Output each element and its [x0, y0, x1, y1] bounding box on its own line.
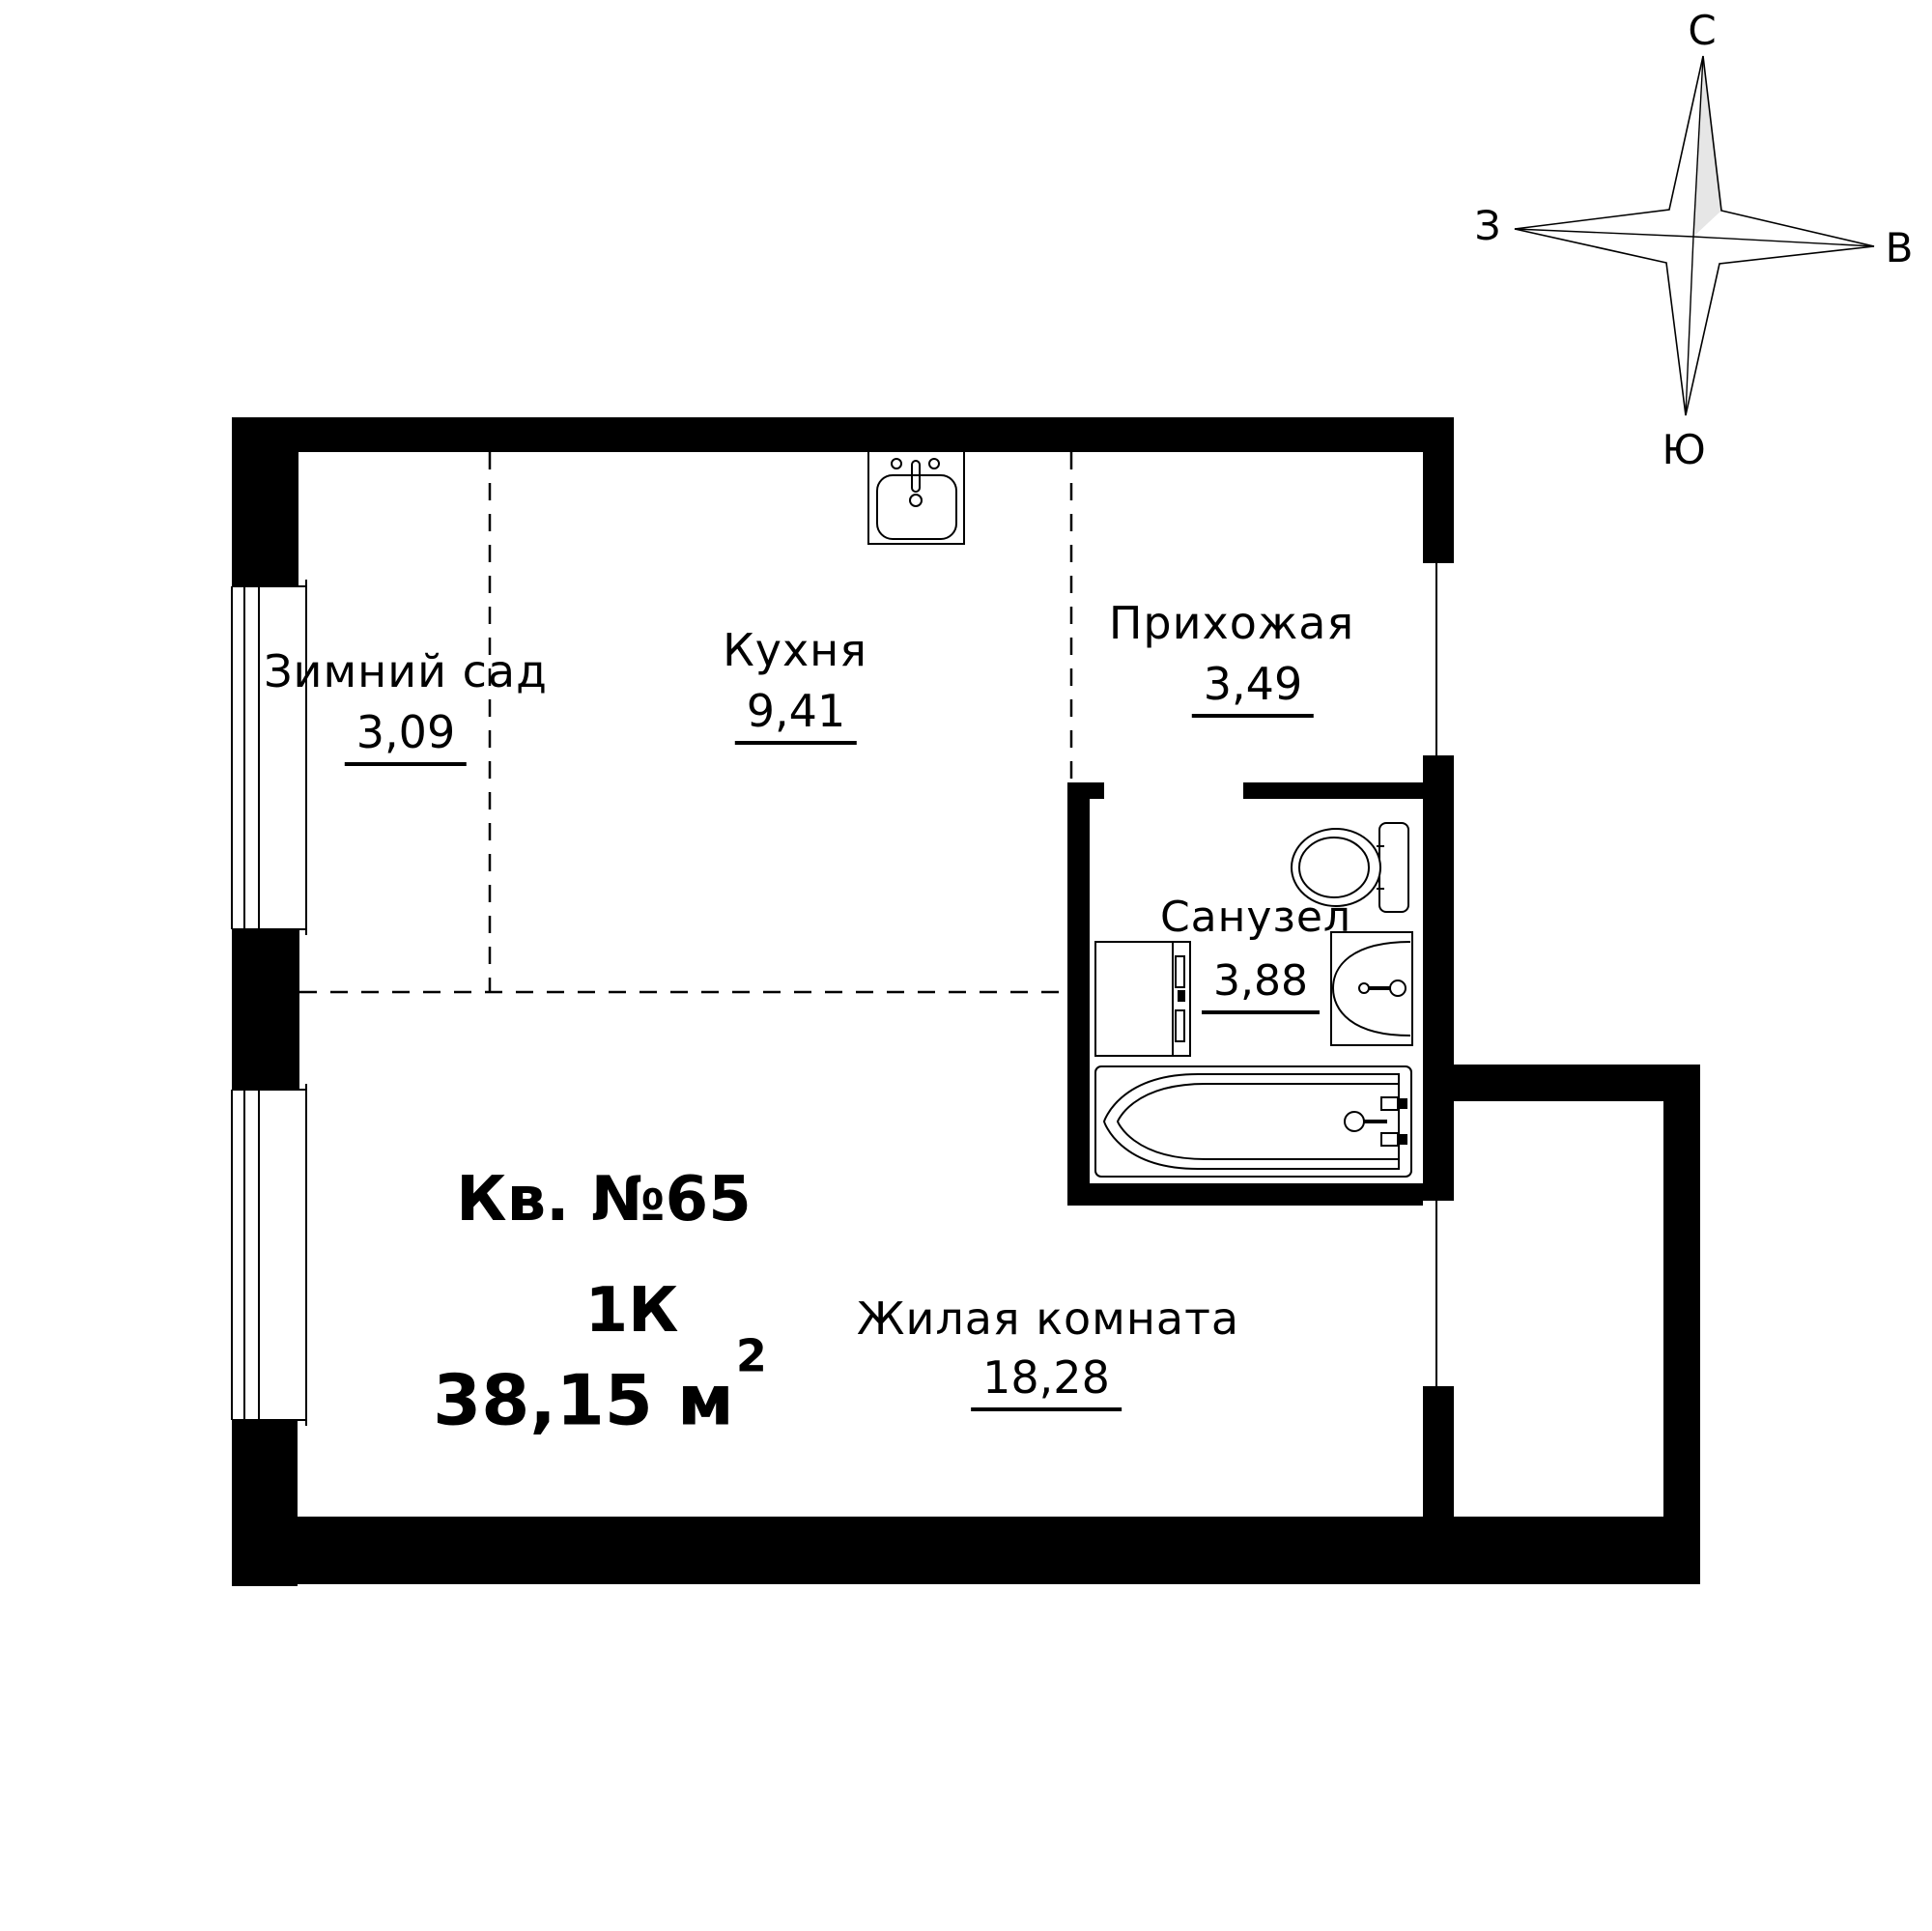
compass-west-label: З: [1475, 206, 1501, 246]
room-area-kitchen: 9,41: [735, 689, 857, 745]
compass-south-label: Ю: [1662, 430, 1705, 470]
room-label-living-room: Жилая комната: [857, 1296, 1239, 1341]
room-label-bathroom: Санузел: [1160, 896, 1351, 939]
room-area-living-room: 18,28: [971, 1355, 1122, 1411]
wall-top: [232, 417, 1454, 452]
apartment-rooms-type: 1К: [585, 1280, 679, 1342]
page: { "apartment": { "number": "Кв. №65", "r…: [0, 0, 1932, 1931]
room-label-winter-garden: Зимний сад: [264, 649, 548, 694]
room-area-hallway: 3,49: [1192, 662, 1314, 718]
wall-right-middle: [1423, 755, 1454, 1201]
wall-bathroom-bottom: [1067, 1183, 1423, 1206]
apartment-total-area: 38,15 м2: [433, 1363, 765, 1435]
wall-bathroom-top-right: [1243, 782, 1423, 799]
room-label-kitchen: Кухня: [723, 628, 867, 672]
room-label-hallway: Прихожая: [1109, 601, 1354, 645]
apartment-number: Кв. №65: [456, 1169, 751, 1231]
window-living-left-icon: [232, 1084, 306, 1426]
wall-extension-right: [1663, 1101, 1700, 1521]
wall-bathroom-left: [1067, 782, 1090, 1206]
wall-right-lower: [1423, 1386, 1454, 1521]
kitchen-sink-icon: [868, 451, 964, 544]
wall-left-middle: [232, 929, 299, 1090]
compass-north-label: С: [1688, 11, 1716, 51]
room-area-bathroom: 3,88: [1202, 960, 1320, 1014]
washing-machine-icon: [1095, 942, 1190, 1056]
wall-bottom: [232, 1517, 1700, 1584]
compass-east-label: В: [1886, 228, 1914, 269]
compass-rose-icon: [1515, 56, 1874, 415]
washbasin-icon: [1331, 932, 1412, 1045]
room-area-winter-garden: 3,09: [345, 710, 467, 766]
wall-right-upper: [1423, 417, 1454, 563]
wall-extension-top: [1454, 1065, 1700, 1101]
bathtub-icon: [1095, 1066, 1411, 1177]
floorplan-canvas: Зимний сад 3,09 Кухня 9,41 Прихожая 3,49…: [0, 0, 1932, 1931]
window-winter-garden-icon: [232, 580, 306, 935]
wall-bathroom-top-left-stub: [1067, 782, 1104, 799]
floorplan-drawing: [0, 0, 1932, 1931]
wall-left-upper: [232, 446, 298, 587]
